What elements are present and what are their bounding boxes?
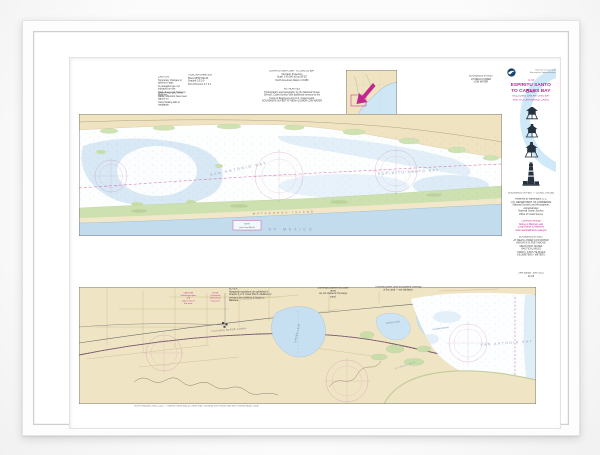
lighthouse-icon <box>525 107 539 120</box>
lighthouse-icon <box>524 142 539 158</box>
frame-mat: CAUTION Temporary changes or defects in … <box>35 33 567 423</box>
mat-opening-chart-print: CAUTION Temporary changes or defects in … <box>69 57 561 429</box>
svg-text:(see Coast Pilot 5): (see Coast Pilot 5) <box>239 226 255 229</box>
note-lower-obstructions: NOTE Uncharted obstructions may exist. <box>207 292 224 303</box>
bay-shoal-patch <box>433 311 461 323</box>
panel-subtitle-line2: AND VICTORIA BARGE CANAL <box>506 99 556 102</box>
note-authorities: AUTHORITIES Hydrography and topography b… <box>254 88 330 103</box>
note-lower-pipeline: Submerged pipeline and cable areas are n… <box>316 287 350 298</box>
noaa-logo-icon <box>507 68 516 77</box>
note-radar-reflectors: RADAR REFLECTORS Radar reflectors have b… <box>158 92 190 107</box>
panel-correction-block: Corrected through Notice to Mariners and… <box>506 220 556 232</box>
panel-edition-footer: 24th Edition, June 2015 11315 <box>506 272 556 278</box>
panel-subtitle-line1: INCLUDING SAN ANTONIO BAY <box>506 95 556 98</box>
inset-location-map <box>346 70 397 115</box>
wall-background: CAUTION Temporary changes or defects in … <box>0 0 600 455</box>
note-lower-caution: CAUTION Submerged piles and stakes exist… <box>180 292 197 305</box>
panel-scale-line: SOUNDINGS IN FEET — SCALE 1:40,000 <box>506 192 556 195</box>
note-lower-crossings: Overhead power cable and pipeline crossi… <box>368 286 429 292</box>
lower-chart-map: SAN ANTONIO BAY HYNES BAY GREEN LAKE MIS… <box>79 287 536 404</box>
picture-frame: CAUTION Temporary changes or defects in … <box>22 20 580 436</box>
panel-agency-lines: National Oceanic and Atmospheric Adminis… <box>517 69 556 74</box>
panel-units-block: SOUNDINGS IN FEET AT MEAN LOWER LOW WATE… <box>506 236 556 257</box>
chart-title-panel: National Oceanic and Atmospheric Adminis… <box>506 66 556 306</box>
note-lower-note-a: NOTE A Navigation regulations are publis… <box>229 288 272 302</box>
panel-info-block: Published at Washington, D.C. U.S. DEPAR… <box>506 198 556 216</box>
chart-note-box: NOTE (see Coast Pilot 5) <box>233 221 261 231</box>
svg-text:NOTE: NOTE <box>244 224 250 226</box>
panel-chart-number: 11315 <box>506 79 556 82</box>
print-caption: NOAA Nautical Chart 11315 — Espiritu San… <box>134 405 406 408</box>
note-soundings-unit: SOUNDINGS IN FEET AT MEAN LOWER LOW WATE… <box>462 75 500 84</box>
note-tidal-table: TIDAL INFORMATION Place MHW MLLW Seadrif… <box>188 74 223 86</box>
upper-chart-map: SAN ANTONIO BAY ESPIRITU SANTO BAY MATAG… <box>79 114 502 236</box>
note-projection: ESPIRITU SANTO BAY TO CARLOS BAY Mercato… <box>254 70 330 82</box>
lighthouse-icon <box>525 124 539 138</box>
lighthouse-icon <box>522 162 540 188</box>
